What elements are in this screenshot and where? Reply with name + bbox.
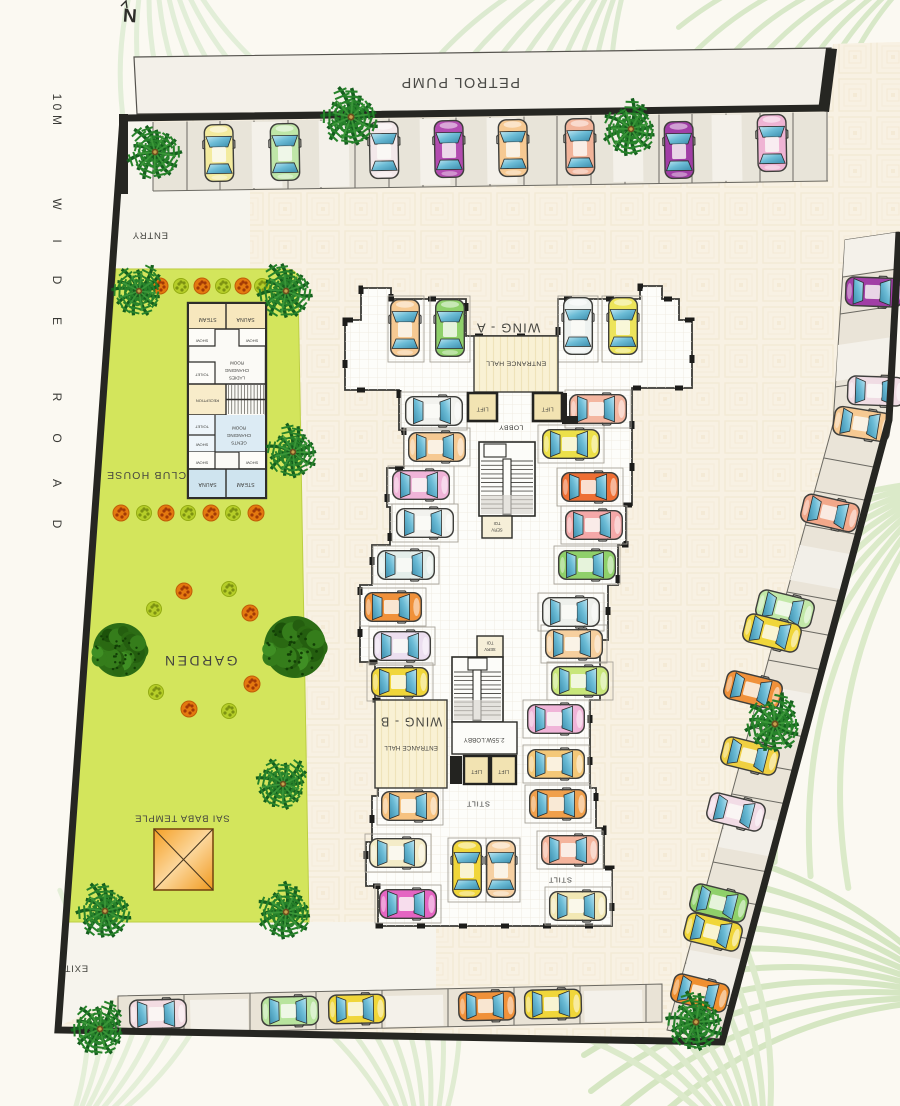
svg-text:STEAM: STEAM — [236, 481, 254, 487]
svg-text:2.55W.LOBBY: 2.55W.LOBBY — [464, 736, 505, 742]
svg-text:WING - A: WING - A — [476, 320, 541, 335]
svg-text:GARDEN: GARDEN — [163, 653, 238, 669]
svg-text:SERV: SERV — [491, 527, 503, 532]
svg-text:ENTRANCE HALL: ENTRANCE HALL — [486, 360, 546, 367]
svg-text:D: D — [50, 276, 64, 285]
svg-text:TOI: TOI — [494, 521, 501, 526]
svg-text:CHANGING: CHANGING — [224, 368, 249, 373]
svg-text:SHOW: SHOW — [196, 461, 209, 466]
svg-text:ROOM: ROOM — [230, 360, 244, 365]
svg-text:STEAM: STEAM — [198, 316, 216, 322]
svg-text:ROOM: ROOM — [232, 425, 246, 430]
svg-text:W: W — [50, 198, 64, 210]
svg-text:O: O — [50, 433, 64, 442]
svg-text:ENTRY: ENTRY — [132, 230, 168, 241]
svg-text:STILT: STILT — [548, 875, 572, 884]
svg-text:TOILET: TOILET — [194, 373, 208, 378]
svg-text:LIFT: LIFT — [541, 406, 554, 412]
svg-text:N: N — [122, 6, 137, 28]
svg-text:SAI BABA TEMPLE: SAI BABA TEMPLE — [134, 813, 229, 824]
svg-text:SHOW: SHOW — [246, 461, 259, 466]
svg-text:GENTS: GENTS — [231, 440, 247, 445]
svg-text:LIFT: LIFT — [476, 406, 489, 412]
svg-text:R: R — [50, 393, 64, 402]
svg-text:ENTRANCE HALL: ENTRANCE HALL — [384, 744, 438, 751]
svg-text:E: E — [50, 317, 64, 325]
svg-text:CHANGING: CHANGING — [226, 433, 251, 438]
svg-text:TOILET: TOILET — [194, 425, 208, 430]
svg-text:PETROL PUMP: PETROL PUMP — [400, 74, 520, 90]
svg-text:D: D — [50, 520, 64, 529]
svg-text:I: I — [50, 239, 64, 242]
svg-text:SHOW: SHOW — [196, 339, 209, 344]
svg-text:LOBBY: LOBBY — [499, 424, 524, 431]
svg-text:TOI: TOI — [487, 640, 494, 645]
svg-text:SERV: SERV — [484, 647, 496, 652]
svg-text:WING - B: WING - B — [380, 715, 442, 729]
svg-text:CLUB HOUSE: CLUB HOUSE — [106, 469, 186, 481]
svg-text:SHOW: SHOW — [196, 443, 209, 448]
svg-text:LIFT: LIFT — [471, 768, 482, 774]
svg-text:1: 1 — [50, 94, 64, 101]
svg-text:STILT: STILT — [466, 799, 490, 808]
svg-text:LADIES: LADIES — [229, 375, 245, 380]
svg-text:M: M — [50, 115, 64, 125]
svg-text:LIFT: LIFT — [498, 768, 509, 774]
svg-text:SAUNA: SAUNA — [198, 481, 217, 487]
svg-text:RECEPTION: RECEPTION — [196, 399, 219, 404]
svg-text:EXIT: EXIT — [64, 963, 88, 974]
svg-text:A: A — [50, 479, 64, 487]
svg-text:SHOW: SHOW — [246, 339, 259, 344]
svg-text:0: 0 — [50, 104, 64, 111]
svg-text:SAUNA: SAUNA — [236, 316, 255, 322]
